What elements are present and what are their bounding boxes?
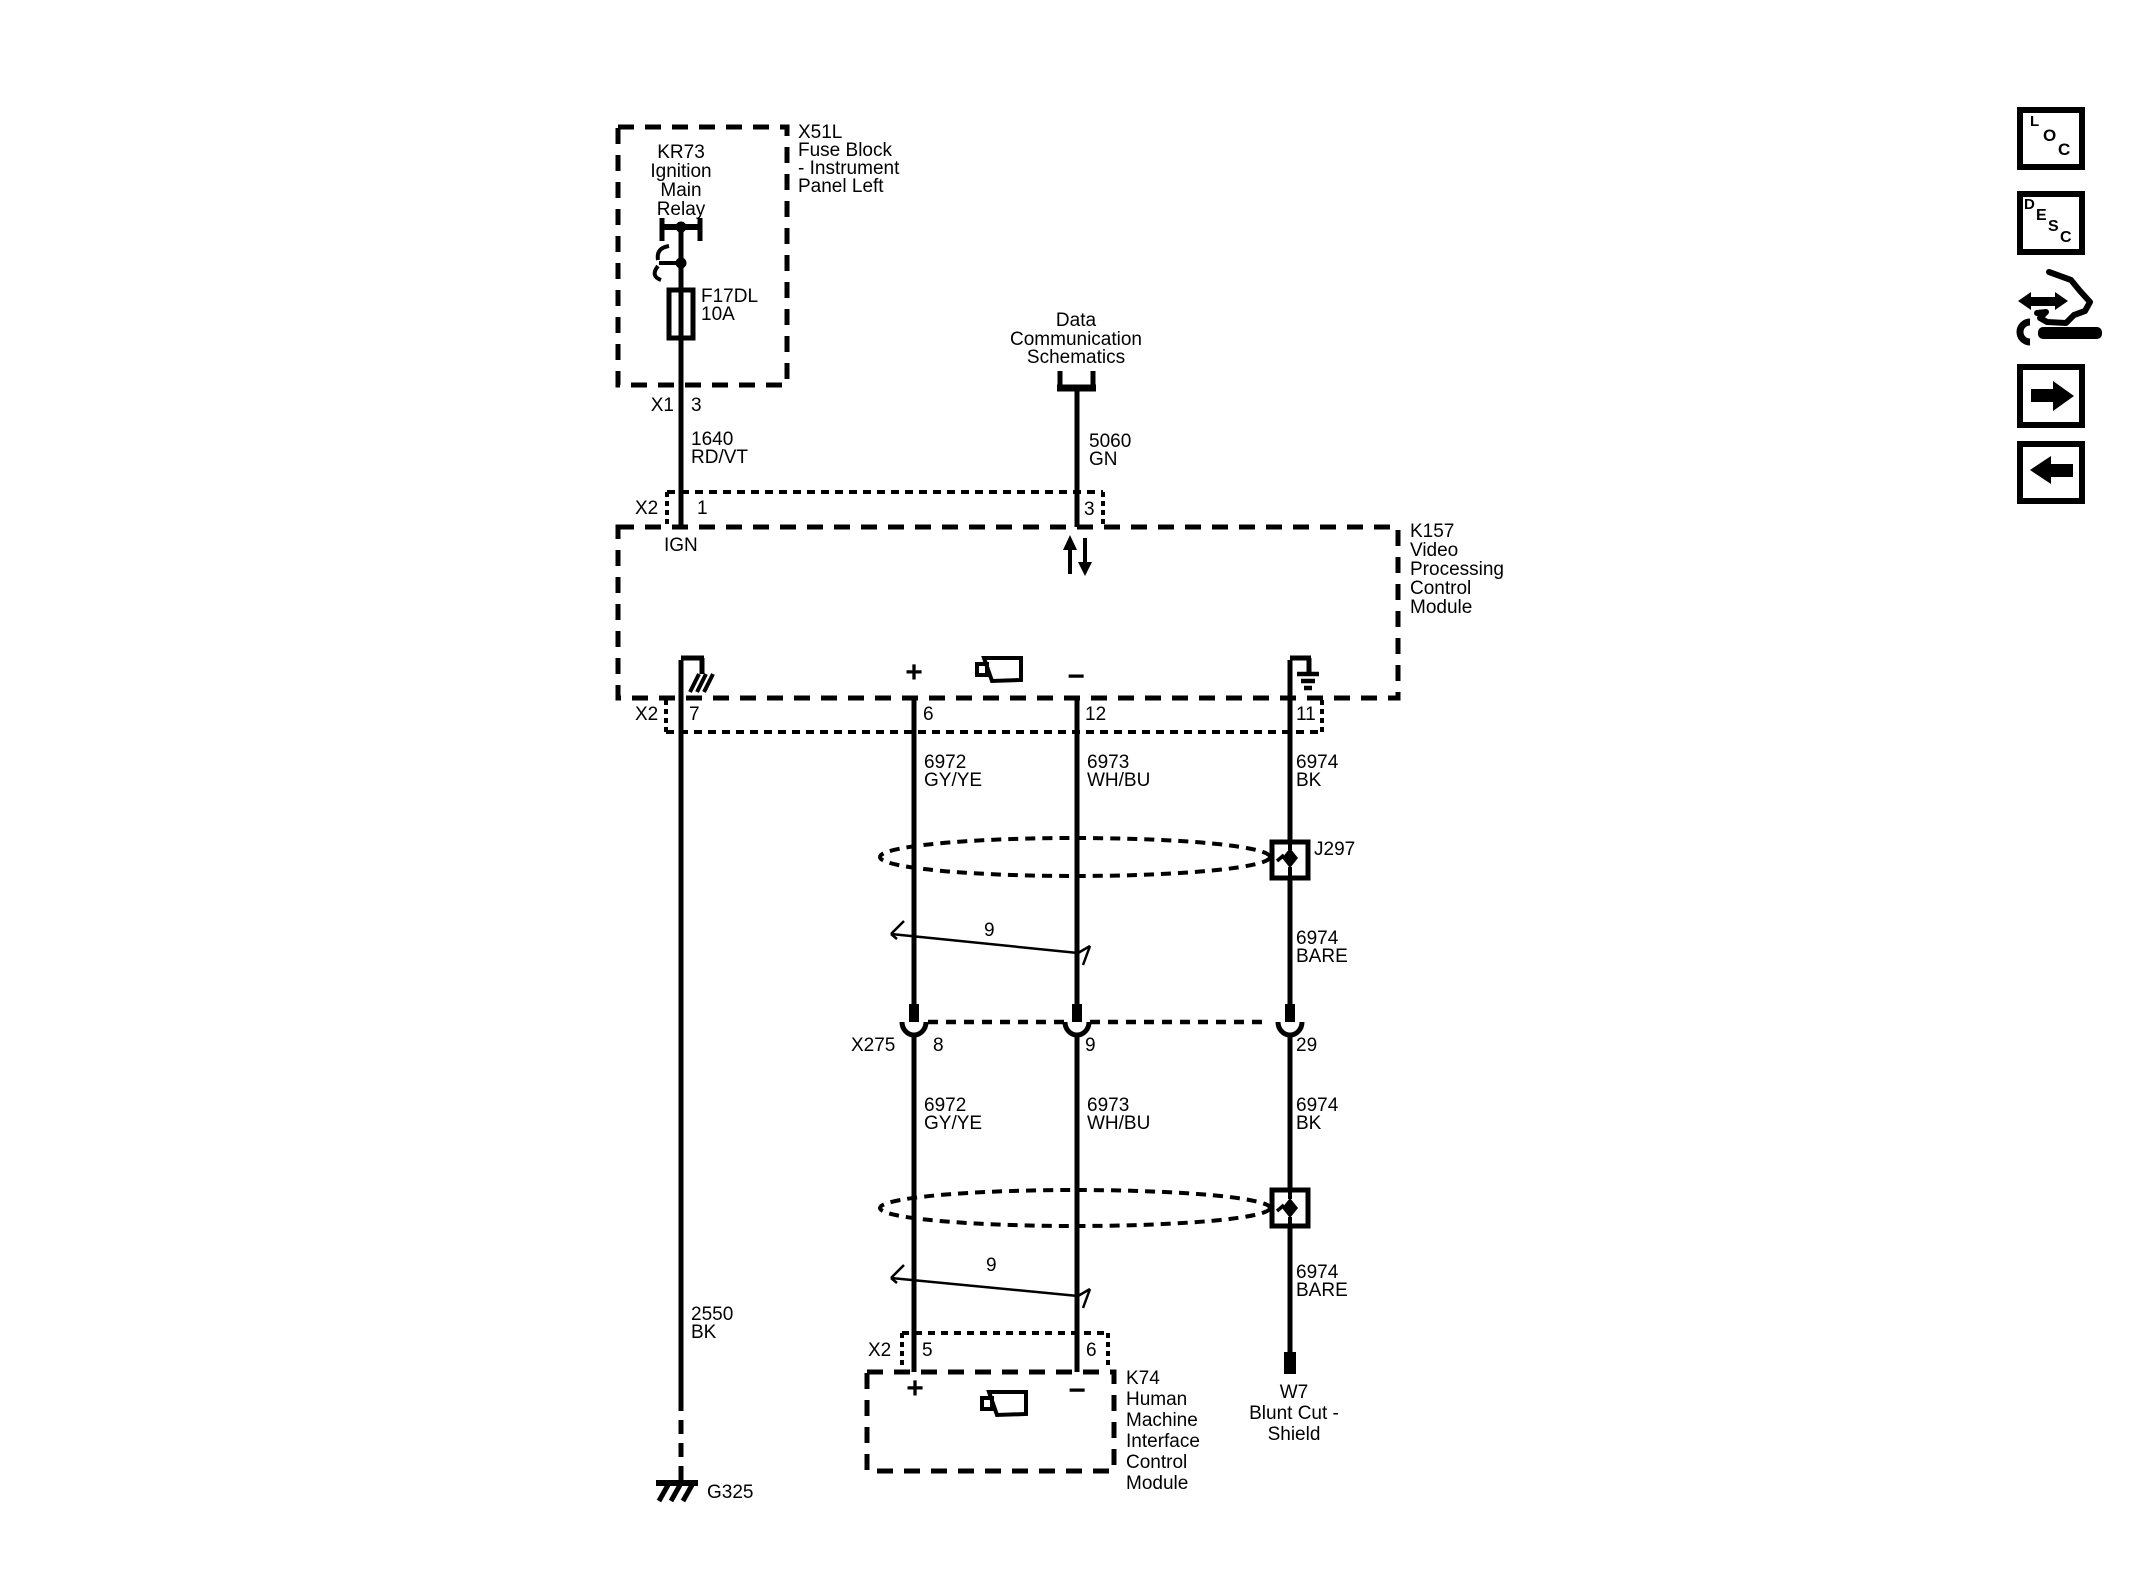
schematic-tools-icon[interactable] (2018, 272, 2102, 342)
chassis-ground-icon (1290, 658, 1319, 698)
wiring-diagram-drawing (0, 0, 2130, 1595)
relay-symbol (655, 218, 702, 280)
w7-blunt-cut-stub (1284, 1352, 1296, 1374)
k74-pin-6-label: 6 (1086, 1341, 1097, 1360)
twist-count-lower: 9 (986, 1256, 997, 1275)
ign-input-label: IGN (664, 536, 698, 555)
g325-ground-label: G325 (707, 1483, 753, 1502)
camera-icon-k157 (977, 658, 1021, 681)
k157-pin-7-label: 7 (689, 705, 700, 724)
x275-pin-8-label: 8 (933, 1036, 944, 1055)
signal-ground-icon (681, 658, 713, 698)
k157-pin-12-label: 12 (1085, 705, 1106, 724)
k157-bottom-connector-strip (666, 700, 1322, 732)
wire-5060-label: 5060 GN (1089, 433, 1131, 469)
camera-icon-k74 (982, 1392, 1026, 1415)
bidirectional-data-arrows-icon (1063, 535, 1092, 576)
k157-bottom-connector-name: X2 (635, 705, 658, 724)
w7-blunt-cut-label: W7 Blunt Cut - Shield (1216, 1382, 1372, 1445)
forward-button[interactable] (2020, 367, 2082, 425)
j297-splice-label: J297 (1314, 840, 1355, 859)
j297-splice-symbol (1272, 842, 1308, 878)
wire-6972-lower-label: 6972 GY/YE (924, 1097, 982, 1133)
relay-kr73-label: KR73 Ignition Main Relay (601, 143, 761, 219)
desc-letter-e: E (2036, 208, 2047, 224)
offpage-reference-link[interactable]: Data Communication Schematics (996, 312, 1156, 368)
desc-letter-d: D (2024, 197, 2035, 213)
x275-connector-row (902, 1004, 1302, 1035)
wire-6973-lower-label: 6973 WH/BU (1087, 1097, 1150, 1133)
desc-letter-s: S (2048, 219, 2059, 235)
wire-6974-bare-upper-label: 6974 BARE (1296, 930, 1348, 966)
wire-6973-upper-label: 6973 WH/BU (1087, 754, 1150, 790)
k74-connector-name: X2 (868, 1341, 891, 1360)
k74-module-label: K74 Human Machine Interface Control Modu… (1126, 1368, 1200, 1494)
wire-1640-label: 1640 RD/VT (691, 431, 748, 467)
k157-top-connector-name: X2 (635, 499, 658, 518)
loc-letter-c: C (2058, 142, 2070, 158)
k157-module-box (618, 527, 1398, 698)
k157-plus-icon: + (899, 658, 929, 688)
x275-pin-9-label: 9 (1085, 1036, 1096, 1055)
twist-count-upper: 9 (984, 921, 995, 940)
wiring-diagram-page: KR73 Ignition Main Relay X51L Fuse Block… (0, 0, 2130, 1595)
g325-ground-icon (656, 1483, 698, 1501)
wire-6972-upper-label: 6972 GY/YE (924, 754, 982, 790)
back-button[interactable] (2020, 444, 2082, 501)
k74-minus-icon: − (1062, 1376, 1092, 1406)
x275-pin-29-label: 29 (1296, 1036, 1317, 1055)
splice-symbol-lower (1272, 1190, 1308, 1226)
k157-pin-1-label: 1 (697, 499, 708, 518)
wire-6974-lower-label: 6974 BK (1296, 1097, 1338, 1133)
loc-letter-l: L (2030, 114, 2039, 130)
wire-2550-label: 2550 BK (691, 1306, 733, 1342)
x275-connector-name: X275 (851, 1036, 895, 1055)
k157-minus-icon: − (1061, 662, 1091, 692)
desc-letter-c: C (2060, 230, 2072, 246)
x1-connector-label: X1 (630, 396, 674, 415)
fuse-block-x51l-label: X51L Fuse Block - Instrument Panel Left (798, 124, 899, 196)
k74-plus-icon: + (900, 1374, 930, 1404)
offpage-connector-symbol (1057, 371, 1096, 391)
loc-letter-o: O (2043, 128, 2056, 144)
wire-6974-bare-lower-label: 6974 BARE (1296, 1264, 1348, 1300)
wire-6974-upper-label: 6974 BK (1296, 754, 1338, 790)
k74-pin-5-label: 5 (922, 1341, 933, 1360)
k157-top-connector-strip (667, 492, 1103, 526)
fuse-f17dl-label: F17DL 10A (701, 288, 758, 324)
k157-pin-11-label: 11 (1296, 705, 1316, 724)
k157-module-label: K157 Video Processing Control Module (1410, 522, 1504, 617)
k157-pin-3-label: 3 (1084, 500, 1095, 519)
k157-pin-6-label: 6 (923, 705, 934, 724)
x1-pin-3-label: 3 (691, 396, 702, 415)
